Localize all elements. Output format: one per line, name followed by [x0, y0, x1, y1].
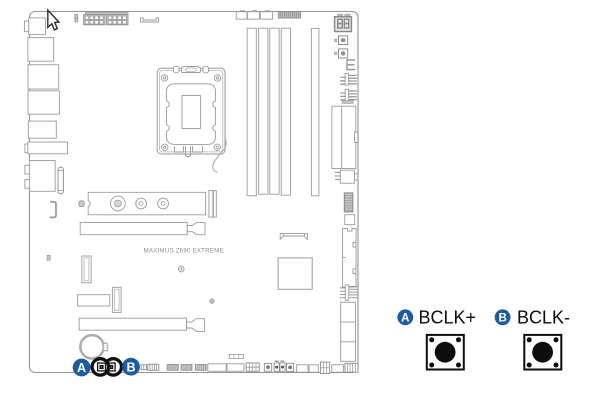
- svg-text:BCLK+: BCLK+: [419, 308, 477, 328]
- svg-text:B: B: [126, 360, 135, 374]
- svg-text:A: A: [401, 313, 409, 325]
- svg-text:A: A: [77, 361, 86, 375]
- svg-text:BCLK-: BCLK-: [517, 308, 570, 328]
- svg-text:MAXIMUS Z690 EXTREME: MAXIMUS Z690 EXTREME: [144, 248, 224, 255]
- svg-text:B: B: [498, 313, 506, 325]
